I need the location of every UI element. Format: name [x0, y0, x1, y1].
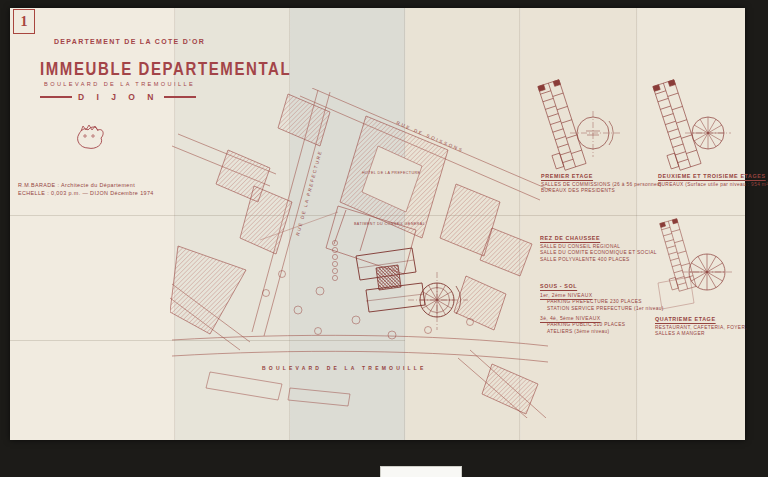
annotation-line: BUREAUX (Surface utile par niveau : 954 …: [658, 182, 768, 189]
site-plan-drawing: RUE DE SOISSONS RUE DE LA PREFECTURE BOU…: [170, 88, 550, 418]
annotation-deuxieme-troisieme: DEUXIEME ET TROISIEME ETAGES BUREAUX (Su…: [658, 173, 768, 188]
annotation-sous-sol: SOUS - SOL 1er, 2ème NIVEAUX PARKING PRE…: [540, 283, 664, 335]
annotation-heading: QUATRIEME ETAGE: [655, 316, 747, 322]
annotation-line: STATION SERVICE PREFECTURE (1er niveau): [547, 306, 664, 313]
plan-quatrieme: [654, 219, 732, 309]
building-label-conseil: BATIMENT DU CONSEIL GENERAL: [354, 222, 425, 226]
street-label-boulevard: BOULEVARD DE LA TREMOUILLE: [262, 365, 427, 371]
annotation-heading: PREMIER ETAGE: [541, 173, 662, 179]
department-line: DEPARTEMENT DE LA COTE D'OR: [54, 38, 220, 45]
annotation-heading: SOUS - SOL: [540, 283, 664, 289]
annotation-line: SALLES DE COMMISSIONS (26 à 56 personnes…: [541, 182, 662, 189]
annotation-line: SALLE DU CONSEIL REGIONAL: [540, 244, 657, 251]
annotation-heading: DEUXIEME ET TROISIEME ETAGES: [658, 173, 768, 179]
rule-left: [40, 96, 72, 98]
owl-emblem-icon: [68, 121, 108, 155]
mount-label-tab: [380, 466, 462, 477]
plan-sheet: 1 DEPARTEMENT DE LA COTE D'OR IMMEUBLE D…: [10, 8, 745, 440]
annotation-line: ATELIERS (3ème niveau): [547, 329, 664, 336]
annotation-level: 1er, 2ème NIVEAUX: [540, 292, 664, 299]
scale-date-line: ECHELLE : 0,003 p.m. — DIJON Décembre 19…: [18, 189, 154, 197]
annotation-premier-etage: PREMIER ETAGE SALLES DE COMMISSIONS (26 …: [541, 173, 662, 195]
annotation-line: PARKING PUBLIC 510 PLACES: [547, 322, 664, 329]
address-line: BOULEVARD DE LA TREMOUILLE: [44, 81, 220, 87]
annotation-quatrieme: QUATRIEME ETAGE RESTAURANT, CAFETERIA, F…: [655, 316, 747, 338]
building-label-prefecture: HOTEL DE LA PREFECTURE: [362, 171, 421, 175]
street-label-prefecture: RUE DE LA PREFECTURE: [295, 150, 323, 237]
plan-title: IMMEUBLE DEPARTEMENTAL: [40, 57, 220, 78]
plan-premier-etage: [530, 80, 622, 173]
annotation-line: PARKING PREFECTURE 230 PLACES: [547, 299, 664, 306]
annotation-rez-de-chaussee: REZ DE CHAUSSEE SALLE DU CONSEIL REGIONA…: [540, 235, 657, 263]
annotation-line: BUREAUX DES PRESIDENTS: [541, 188, 662, 195]
annotation-line: RESTAURANT, CAFETERIA, FOYER,: [655, 325, 747, 332]
south-blocks: [206, 372, 350, 406]
architect-credit: R.M.BARADE : Architecte du Département: [18, 181, 154, 189]
new-building: [356, 248, 468, 330]
annotation-heading: REZ DE CHAUSSEE: [540, 235, 657, 241]
credit-block: R.M.BARADE : Architecte du Département E…: [18, 181, 154, 197]
annotation-line: SALLE DU COMITE ECONOMIQUE ET SOCIAL: [540, 250, 657, 257]
city-name: D I J O N: [78, 92, 158, 102]
sheet-number: 1: [13, 9, 35, 34]
photo-mount: 1 DEPARTEMENT DE LA COTE D'OR IMMEUBLE D…: [0, 0, 768, 477]
annotation-line: SALLES A MANGER: [655, 331, 747, 338]
annotation-line: SALLE POLYVALENTE 400 PLACES: [540, 257, 657, 264]
annotation-level: 3è, 4è, 5ème NIVEAUX: [540, 315, 664, 322]
plan-deuxieme-troisieme: [645, 80, 731, 173]
